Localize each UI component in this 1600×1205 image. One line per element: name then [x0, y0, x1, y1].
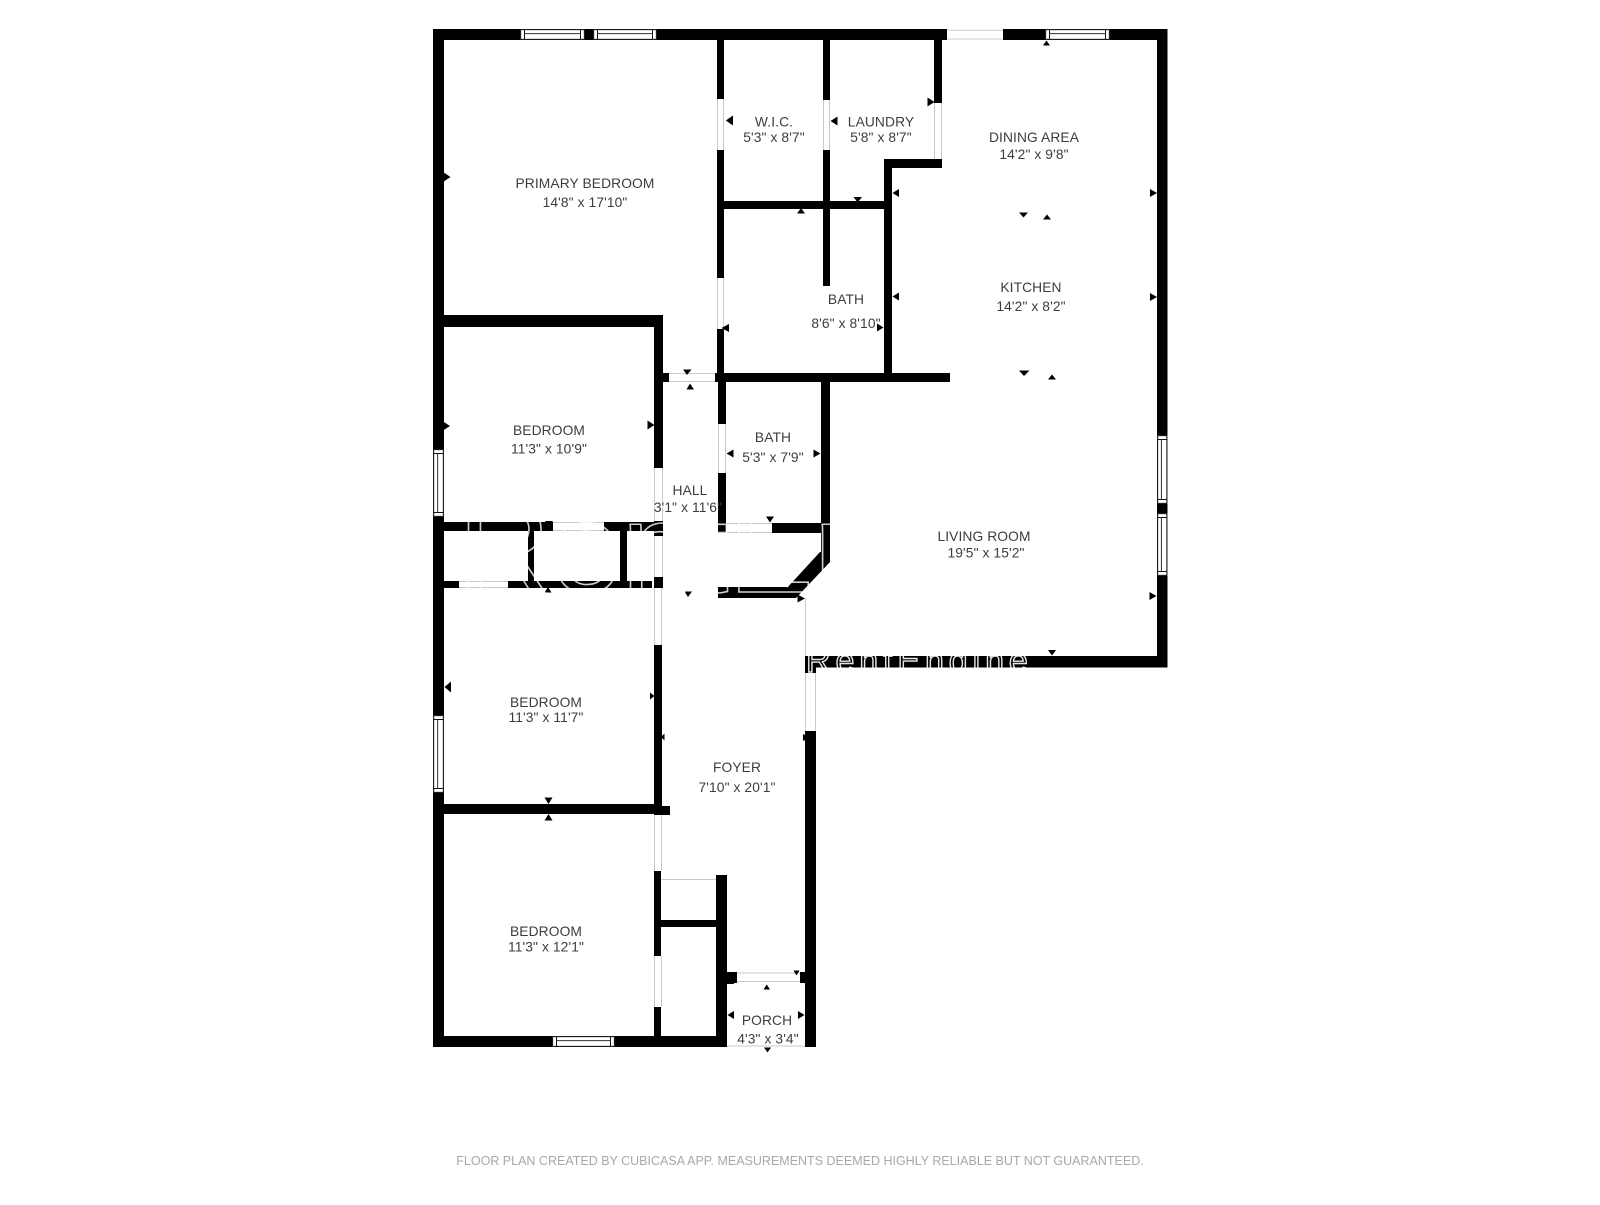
svg-text:BATH: BATH — [828, 292, 864, 307]
svg-text:11'3" x 10'9": 11'3" x 10'9" — [511, 442, 587, 457]
svg-text:BEDROOM: BEDROOM — [510, 695, 582, 710]
svg-text:LAUNDRY: LAUNDRY — [848, 115, 914, 130]
svg-text:PORCH: PORCH — [742, 1013, 792, 1028]
svg-text:4'3" x 3'4": 4'3" x 3'4" — [737, 1032, 798, 1047]
svg-text:W.I.C.: W.I.C. — [755, 115, 793, 130]
svg-text:RentEngine: RentEngine — [806, 642, 1033, 680]
svg-text:5'3" x 7'9": 5'3" x 7'9" — [742, 450, 803, 465]
svg-text:PRIMARY BEDROOM: PRIMARY BEDROOM — [516, 176, 655, 191]
svg-text:11'3" x 12'1": 11'3" x 12'1" — [508, 940, 584, 955]
svg-text:19'5" x 15'2": 19'5" x 15'2" — [948, 546, 1025, 561]
svg-text:3'1" x 11'6": 3'1" x 11'6" — [654, 500, 722, 515]
svg-text:5'3" x 8'7": 5'3" x 8'7" — [743, 130, 804, 145]
svg-text:BATH: BATH — [755, 430, 791, 445]
svg-text:LIVING ROOM: LIVING ROOM — [937, 529, 1030, 544]
svg-text:FOYER: FOYER — [713, 760, 761, 775]
svg-text:14'8" x 17'10": 14'8" x 17'10" — [543, 195, 628, 210]
svg-text:11'3" x 11'7": 11'3" x 11'7" — [509, 710, 584, 725]
svg-text:5'8" x 8'7": 5'8" x 8'7" — [850, 130, 911, 145]
svg-text:DINING AREA: DINING AREA — [989, 130, 1080, 145]
svg-text:14'2" x 8'2": 14'2" x 8'2" — [996, 299, 1065, 314]
svg-text:RentEngine: RentEngine — [458, 477, 1127, 620]
svg-text:BEDROOM: BEDROOM — [513, 423, 585, 438]
svg-text:HALL: HALL — [673, 483, 708, 498]
svg-text:KITCHEN: KITCHEN — [1000, 280, 1061, 295]
svg-text:8'6" x 8'10": 8'6" x 8'10" — [811, 316, 880, 331]
svg-text:7'10" x 20'1": 7'10" x 20'1" — [699, 780, 776, 795]
svg-text:14'2" x 9'8": 14'2" x 9'8" — [999, 147, 1068, 162]
svg-text:BEDROOM: BEDROOM — [510, 924, 582, 939]
svg-text:FLOOR PLAN CREATED BY CUBICASA: FLOOR PLAN CREATED BY CUBICASA APP. MEAS… — [456, 1154, 1143, 1168]
